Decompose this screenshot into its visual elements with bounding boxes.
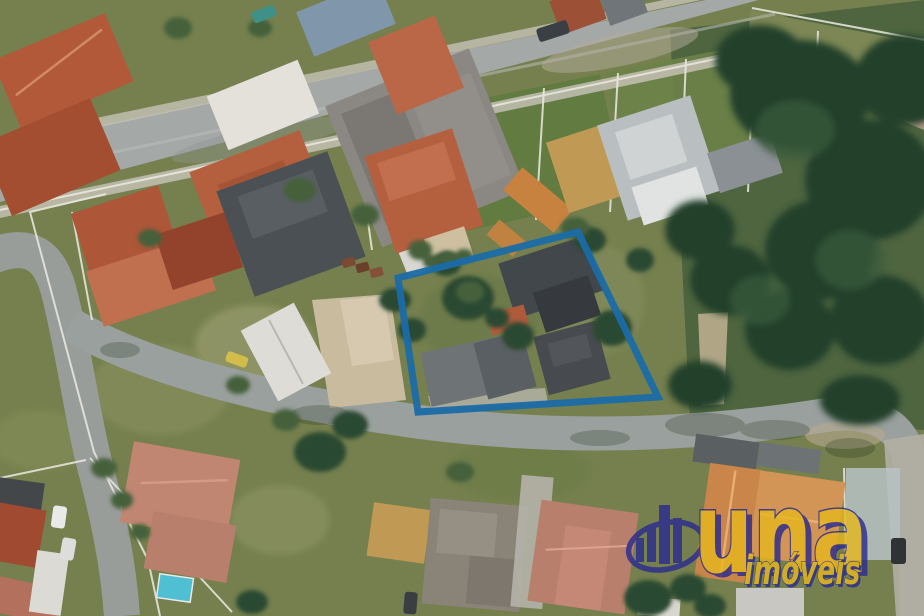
swimming-pool [156, 574, 193, 602]
satellite-image: una una imóveis imóveis [0, 0, 924, 616]
una-tagline-text: imóveis [744, 548, 860, 595]
car [403, 592, 418, 615]
aerial-photo: una una imóveis imóveis [0, 0, 924, 616]
car [891, 538, 906, 564]
house-roof [367, 502, 432, 564]
